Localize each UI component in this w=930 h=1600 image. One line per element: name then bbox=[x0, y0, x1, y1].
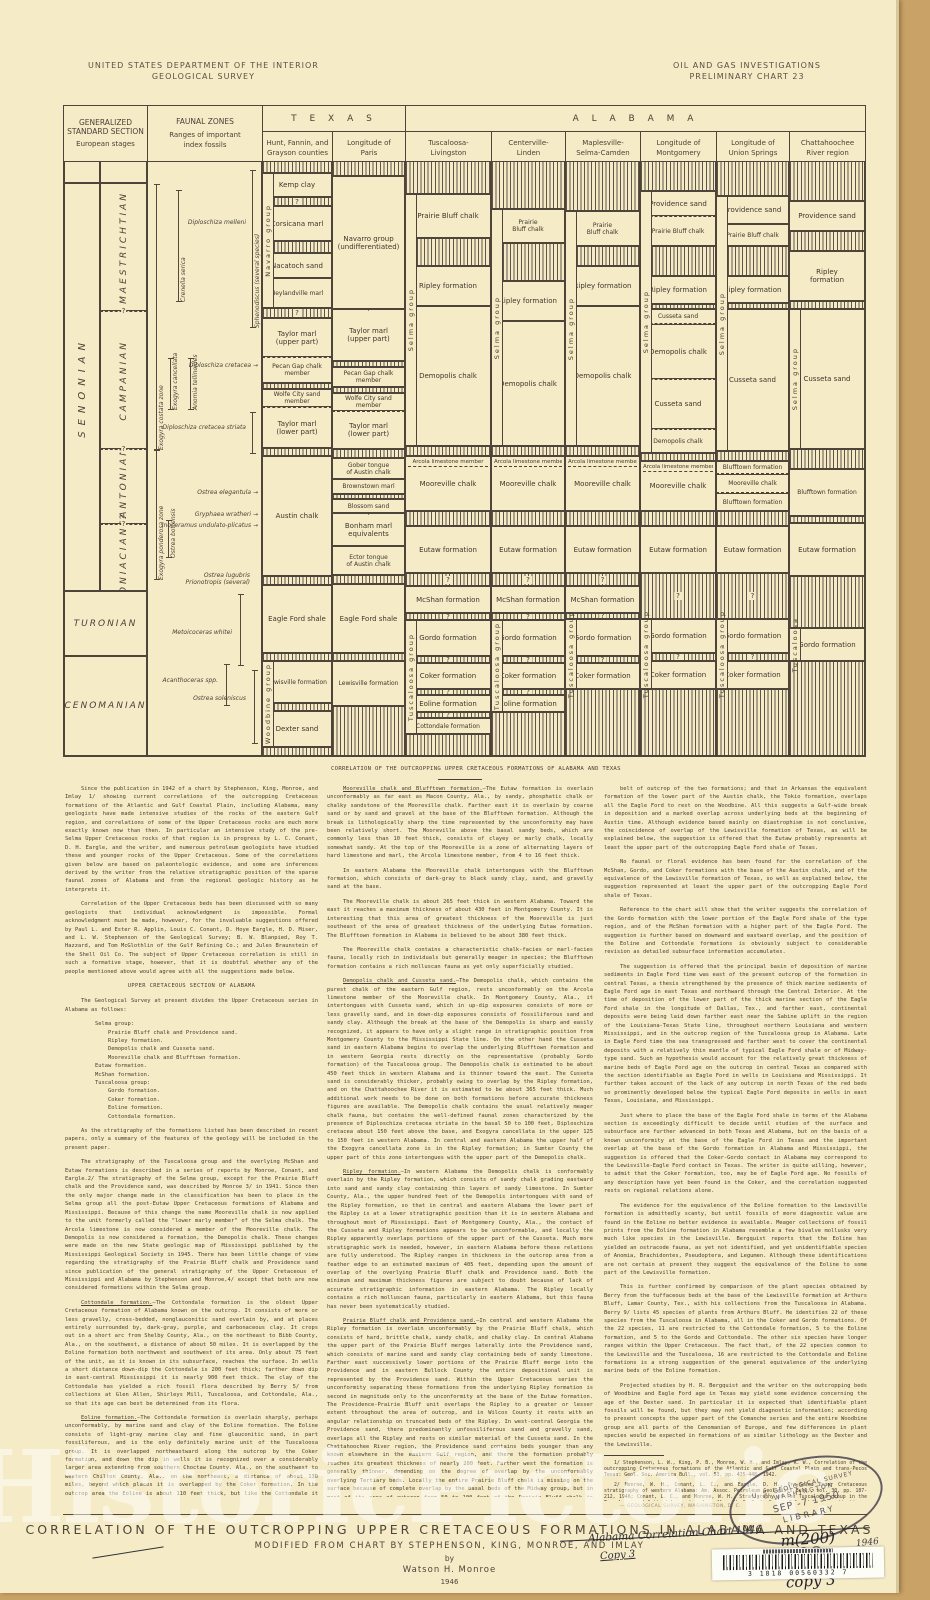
label-line: Providence sand bbox=[649, 200, 707, 208]
unconformity-hatch bbox=[565, 511, 640, 526]
formation-segment: McShan formation bbox=[565, 586, 640, 613]
label-line: European stages bbox=[76, 140, 135, 148]
unconformity-hatch bbox=[405, 734, 491, 756]
group-strip-label: Tuscaloosa group bbox=[567, 610, 575, 698]
formation-segment: Pecan Gap chalk member bbox=[332, 367, 405, 387]
group-strip: Selma group bbox=[640, 191, 652, 453]
label-line: Eagle Ford shale bbox=[340, 615, 398, 623]
unconformity-hatch: ? bbox=[262, 308, 332, 318]
label-line: Hunt, Fannin, and bbox=[267, 139, 329, 147]
column-longitude-of-montgomery: Providence sandPrairie Bluff chalkRipley… bbox=[640, 161, 716, 756]
formation-segment: Blufftown formation bbox=[789, 469, 865, 516]
label-line: Gordo formation bbox=[724, 632, 781, 640]
label-line: STANDARD SECTION bbox=[67, 128, 144, 137]
label-line: Eoline formation bbox=[419, 700, 477, 708]
group-strip-label: Tuscaloosa group bbox=[493, 622, 501, 710]
label-line: Blufftown formation bbox=[723, 464, 783, 471]
paragraph: This is further confirmed by comparison … bbox=[604, 1283, 867, 1375]
question-mark: ? bbox=[674, 653, 682, 661]
label-line: Demopolis chalk bbox=[499, 380, 557, 388]
label-line: formation bbox=[810, 276, 844, 284]
formation-segment: Austin chalk bbox=[262, 456, 332, 576]
list-line: Eoline formation. bbox=[95, 1104, 318, 1112]
unconformity-hatch bbox=[716, 511, 789, 526]
unconformity-hatch: ? bbox=[405, 656, 491, 663]
question-mark: ? bbox=[366, 513, 372, 518]
fossil-label: Diploschiza cretacea → bbox=[189, 363, 258, 370]
paragraph: The evidence for the equivalence of the … bbox=[604, 1202, 867, 1278]
formation-segment: Cottondale formation bbox=[405, 718, 491, 734]
label-line: Kemp clay bbox=[279, 181, 315, 189]
paragraph: No faunal or floral evidence has been fo… bbox=[604, 858, 867, 900]
list-line: Coker formation. bbox=[95, 1096, 318, 1104]
arcola-member-label: Arcola limestone member bbox=[643, 463, 713, 472]
group-strip-label: Tuscaloosa group bbox=[407, 633, 415, 721]
paragraph: Ripley formation.—In western Alabama the… bbox=[327, 1168, 593, 1311]
label-line: Longitude of bbox=[657, 139, 701, 147]
label-line: Longitude of bbox=[731, 139, 775, 147]
unconformity-hatch bbox=[262, 653, 332, 661]
label-line: Navarro group bbox=[343, 235, 393, 243]
group-strip: Tuscaloosa bbox=[789, 628, 801, 661]
unconformity-hatch bbox=[405, 238, 491, 266]
unconformity-hatch bbox=[332, 575, 405, 584]
header-region: Longitude ofMontgomery bbox=[640, 132, 716, 161]
list-line: Ripley formation. bbox=[95, 1037, 318, 1045]
question-mark: ? bbox=[444, 576, 452, 584]
label-line: Corsicana marl bbox=[271, 220, 324, 228]
paragraph-heading: Prairie Bluff chalk and Providence sand. bbox=[343, 1318, 476, 1324]
label-line: Montgomery bbox=[656, 149, 700, 157]
unconformity-hatch bbox=[332, 653, 405, 661]
agency-header: UNITED STATES DEPARTMENT OF THE INTERIOR… bbox=[88, 60, 319, 82]
paper-sheet: UNITED STATES DEPARTMENT OF THE INTERIOR… bbox=[0, 0, 899, 1593]
formation-segment: Demopolis chalk bbox=[405, 306, 491, 446]
header-region: Maplesville-Selma-Camden bbox=[565, 132, 640, 161]
formation-segment: Eutaw formation bbox=[789, 523, 865, 576]
scanned-chart-page: { "page": { "agency_line1": "UNITED STAT… bbox=[0, 0, 930, 1600]
label-line: Maplesville- bbox=[582, 139, 623, 147]
fossil-label: Ostrea soleniscus bbox=[193, 696, 246, 703]
header-region: Centerville-Linden bbox=[491, 132, 565, 161]
label-line: Union Springs bbox=[729, 149, 778, 157]
unconformity-hatch bbox=[565, 161, 640, 211]
barcode-label: 3 1818 00560332 7 bbox=[712, 1547, 885, 1581]
stage-box: SENONIAN bbox=[64, 183, 100, 591]
label-line: Paris bbox=[361, 149, 378, 157]
label-line: Coker formation bbox=[574, 672, 630, 680]
label-line: Prairie Bluff chalk bbox=[417, 212, 478, 220]
question-mark: ? bbox=[293, 309, 301, 317]
label-line: Prairie bbox=[593, 222, 612, 229]
paragraph-heading: Demopolis chalk and Cusseta sand. bbox=[343, 978, 456, 984]
fossil-label: Acanthoceras spp. bbox=[162, 678, 218, 685]
label-line: Ripley formation bbox=[574, 282, 632, 290]
label-line: Bluff chalk bbox=[512, 226, 544, 233]
question-mark: ? bbox=[121, 520, 127, 529]
group-strip-label: Navarro group bbox=[264, 204, 272, 277]
label-line: Coker formation bbox=[724, 671, 780, 679]
unconformity-hatch: ? bbox=[640, 573, 716, 619]
label-line: Cusseta sand bbox=[729, 376, 776, 384]
group-strip-label: Tuscaloosa group bbox=[642, 610, 650, 698]
formation-segment: McShan formation bbox=[405, 586, 491, 613]
fossil-range-line bbox=[156, 450, 157, 580]
group-strip-label: Selma group bbox=[493, 296, 501, 359]
header-group: A L A B A M A bbox=[405, 106, 865, 132]
label-line: Lewisville formation bbox=[339, 680, 399, 687]
paragraph-heading: Ripley formation. bbox=[343, 1169, 401, 1175]
paragraph-heading: Eoline formation. bbox=[81, 1415, 137, 1421]
formation-segment: Taylor marl(upper part) bbox=[262, 318, 332, 357]
group-strip: Navarro group bbox=[262, 173, 274, 308]
fossil-range-line bbox=[240, 594, 241, 666]
group-strip: Selma group bbox=[565, 211, 577, 446]
column-maplesville-selma-camden: PrairieBluff chalkRipley formationDemopo… bbox=[565, 161, 640, 756]
fossil-range-line bbox=[156, 184, 157, 450]
label-line: Prairie Bluff chalk bbox=[726, 232, 779, 239]
question-mark: ? bbox=[674, 592, 682, 600]
label-line: McShan formation bbox=[416, 596, 480, 604]
unconformity-hatch bbox=[789, 161, 865, 201]
group-strip-label: Selma group bbox=[791, 347, 799, 410]
label-line: Pecan Gap chalk member bbox=[263, 363, 331, 377]
series-line2: PRELIMINARY CHART 23 bbox=[673, 71, 821, 82]
agency-line1: UNITED STATES DEPARTMENT OF THE INTERIOR bbox=[88, 60, 319, 71]
fossil-range-label: Exogyra cancellata bbox=[172, 358, 179, 410]
label-line: index fossils bbox=[169, 141, 241, 149]
formation-segment: Brownstown marl bbox=[332, 479, 405, 494]
text-section-heading: CORRELATION OF THE OUTCROPPING UPPER CRE… bbox=[331, 766, 621, 772]
group-strip-label: Selma group bbox=[567, 297, 575, 360]
label-line: Mooreville chalk bbox=[574, 480, 631, 488]
stage-box: CENOMANIAN bbox=[64, 656, 147, 756]
label-line: (upper part) bbox=[276, 338, 319, 346]
question-mark: ? bbox=[524, 656, 532, 663]
unconformity-hatch bbox=[332, 161, 405, 176]
unconformity-hatch bbox=[789, 231, 865, 251]
label-line: Eutaw formation bbox=[419, 546, 477, 554]
formation-segment: Arcola limestone memberMooreville chalk bbox=[565, 456, 640, 511]
label-line: Ector tongue bbox=[349, 554, 388, 561]
fossil-range-line bbox=[252, 170, 253, 328]
arcola-member-label: Arcola limestone member bbox=[494, 458, 562, 467]
formation-segment: Ripley formation bbox=[405, 266, 491, 306]
series-line1: OIL AND GAS INVESTIGATIONS bbox=[673, 60, 821, 71]
unconformity-hatch bbox=[565, 446, 640, 456]
stage-box: TURONIAN bbox=[64, 591, 147, 656]
formation-segment: Eutaw formation bbox=[405, 526, 491, 573]
label-line: Eutaw formation bbox=[574, 546, 632, 554]
paragraph: Correlation of the Upper Cretaceous beds… bbox=[65, 900, 318, 976]
question-mark: ? bbox=[599, 656, 607, 663]
label-line: Bluff chalk bbox=[587, 229, 619, 236]
label-line: Blufftown formation bbox=[723, 499, 783, 506]
label-line: Blossom sand bbox=[348, 503, 390, 510]
label-line: Eutaw formation bbox=[798, 546, 856, 554]
fossil-range-label: Sphenodiscus (several species) bbox=[254, 170, 261, 328]
fossil-label: Ostrea lugubrisPrionotropis (several) bbox=[186, 573, 250, 586]
label-line: Ripley formation bbox=[419, 282, 477, 290]
unconformity-hatch bbox=[716, 689, 789, 756]
fossil-range-label: Exogyra costata zone bbox=[158, 184, 165, 450]
group-strip: Selma group bbox=[789, 309, 801, 449]
unconformity-hatch bbox=[789, 576, 865, 628]
stage-label: TURONIAN bbox=[74, 619, 138, 629]
series-header: OIL AND GAS INVESTIGATIONS PRELIMINARY C… bbox=[673, 60, 821, 82]
question-mark: ? bbox=[121, 307, 127, 316]
fossil-label: Inoceramus undulato-plicatus → bbox=[162, 523, 258, 530]
label-line: (undifferentiated) bbox=[338, 243, 400, 251]
stage-box: ?CAMPANIAN bbox=[100, 311, 147, 449]
label-line: McShan formation bbox=[571, 596, 635, 604]
label-line: Cusseta sand bbox=[658, 313, 698, 320]
label-line: Cottondale formation bbox=[416, 723, 480, 730]
formation-segment: Eagle Ford shale bbox=[262, 585, 332, 653]
label-line: (lower part) bbox=[276, 428, 317, 436]
stage-label: CAMPANIAN bbox=[119, 340, 129, 421]
question-mark: ? bbox=[121, 445, 127, 454]
list-line: Mooreville chalk and Blufftown formation… bbox=[95, 1054, 318, 1062]
label-line: Wolfe City sand member bbox=[263, 391, 331, 405]
formation-segment: ?Bonham marlequivalents bbox=[332, 513, 405, 546]
formation-segment: Eutaw formation bbox=[565, 526, 640, 573]
column-longitude-of-paris: Navarro group(undifferentiated)?Taylor m… bbox=[332, 161, 405, 756]
group-strip: Tuscaloosa group bbox=[716, 619, 728, 689]
formation-segment: Eutaw formation bbox=[716, 526, 789, 573]
unconformity-hatch: ? bbox=[491, 613, 565, 620]
paragraph: Eoline formation.—The Cottondale formati… bbox=[65, 1414, 318, 1497]
header-region: ChattahoocheeRiver region bbox=[789, 132, 865, 161]
group-strip: Selma group bbox=[405, 194, 417, 446]
label-line: Gordo formation bbox=[419, 634, 476, 642]
unconformity-hatch: ? bbox=[565, 573, 640, 586]
stage-label: SENONIAN bbox=[77, 337, 88, 438]
label-line: Chattahoochee bbox=[801, 139, 854, 147]
label-line: Ranges of important bbox=[169, 131, 241, 139]
formation-segment: Arcola limestone memberMooreville chalk bbox=[405, 456, 491, 511]
label-line: McShan formation bbox=[496, 596, 560, 604]
group-strip: Tuscaloosa group bbox=[491, 620, 503, 712]
formation-segment: Mooreville chalk bbox=[716, 474, 789, 493]
label-line: Gordo formation bbox=[574, 634, 631, 642]
header-region: Longitude ofUnion Springs bbox=[716, 132, 789, 161]
formation-segment: Lewisville formation bbox=[332, 661, 405, 706]
label-line: Grayson counties bbox=[267, 149, 328, 157]
formation-segment: Blufftown formation bbox=[716, 461, 789, 474]
label-line: Ripley formation bbox=[499, 297, 557, 305]
text-column-2: Mooreville chalk and Blufftown formation… bbox=[327, 785, 593, 1497]
unconformity-hatch bbox=[491, 712, 565, 756]
fossil-label: Diploschiza cretacea striata bbox=[163, 425, 246, 432]
group-strip-label: Selma group bbox=[718, 292, 726, 355]
unconformity-hatch bbox=[491, 446, 565, 456]
formation-segment: Arcola limestone memberMooreville chalk bbox=[491, 456, 565, 511]
question-mark: ? bbox=[444, 656, 452, 663]
question-mark: ? bbox=[599, 576, 607, 584]
formation-segment: Taylor marl(lower part) bbox=[332, 411, 405, 449]
fossil-range-line bbox=[178, 190, 179, 302]
label-line: Cusseta sand bbox=[803, 375, 850, 383]
label-line: Taylor marl bbox=[278, 420, 317, 428]
unconformity-hatch bbox=[405, 161, 491, 194]
label-line: Demopolis chalk bbox=[419, 372, 477, 380]
stage-label: CENOMANIAN bbox=[65, 701, 147, 711]
label-line: Selma-Camden bbox=[576, 149, 630, 157]
label-line: Taylor marl bbox=[349, 422, 388, 430]
label-line: Eutaw formation bbox=[499, 546, 557, 554]
unconformity-hatch bbox=[405, 446, 491, 456]
formation-segment: Coker formation bbox=[405, 663, 491, 689]
list-line: Gordo formation. bbox=[95, 1087, 318, 1095]
arcola-member-label: Arcola limestone member bbox=[568, 458, 637, 467]
unconformity-hatch: ? bbox=[491, 573, 565, 586]
paragraph: The Mooreville chalk contains a characte… bbox=[327, 946, 593, 971]
unconformity-hatch bbox=[332, 706, 405, 756]
group-strip: Selma group bbox=[716, 196, 728, 451]
fossil-range-line bbox=[254, 670, 255, 744]
group-strip: Tuscaloosa group bbox=[640, 619, 652, 689]
unconformity-hatch: ? bbox=[405, 573, 491, 586]
unconformity-hatch bbox=[262, 747, 332, 756]
printer-imprint: — GEOLOGICAL SURVEY, WASHINGTON, D. C. bbox=[620, 1504, 741, 1509]
label-line: Providence sand bbox=[798, 212, 856, 220]
label-line: Longitude of bbox=[347, 139, 391, 147]
label-line: Livingston bbox=[431, 149, 467, 157]
unconformity-hatch bbox=[640, 511, 716, 526]
list-line: Eutaw formation. bbox=[95, 1062, 318, 1070]
label-line: Lewisville formation bbox=[267, 679, 327, 686]
formation-segment: Prairie Bluff chalk bbox=[405, 194, 491, 238]
formation-segment: Blufftown formation bbox=[716, 493, 789, 511]
label-line: Providence sand bbox=[724, 206, 782, 214]
unconformity-hatch bbox=[789, 301, 865, 309]
group-strip-label: Woodbine group bbox=[264, 663, 272, 744]
stage-box: ?CONIACIAN ? bbox=[100, 524, 147, 591]
group-label: T E X A S bbox=[291, 114, 377, 124]
heading-rule bbox=[438, 779, 482, 780]
label-line: Austin chalk bbox=[276, 512, 319, 520]
stage-box bbox=[100, 161, 147, 183]
header-cell: FAUNAL ZONESRanges of importantindex fos… bbox=[147, 106, 262, 161]
label-line: Ripley formation bbox=[724, 286, 782, 294]
fossil-range-label: Crenella serica bbox=[180, 190, 187, 302]
label-line: Brownstown marl bbox=[342, 483, 394, 490]
formation-segment: McShan formation bbox=[491, 586, 565, 613]
label-line: Coker formation bbox=[500, 672, 556, 680]
label-line: of Austin chalk bbox=[346, 561, 390, 568]
header-region: Tuscaloosa-Livingston bbox=[405, 132, 491, 161]
list-line: Cottondale formation. bbox=[95, 1113, 318, 1121]
label-line: Nacatoch sand bbox=[271, 262, 323, 270]
group-strip: Selma group bbox=[491, 209, 503, 446]
text-column-1: Since the publication in 1942 of a chart… bbox=[65, 785, 318, 1497]
label-line: Ripley bbox=[816, 268, 838, 276]
formation-segment: ?Taylor marl(upper part) bbox=[332, 309, 405, 361]
column-tuscaloosa-livingston: Prairie Bluff chalkRipley formationDemop… bbox=[405, 161, 491, 756]
group-strip-label: Tuscaloosa bbox=[791, 617, 799, 672]
paragraph: Reference to the chart will show that th… bbox=[604, 906, 867, 956]
formation-segment: Wolfe City sand member bbox=[332, 393, 405, 411]
formation-segment: Gober tongueof Austin chalk bbox=[332, 458, 405, 479]
label-line: Demopolis chalk bbox=[653, 438, 703, 445]
unconformity-hatch: ? bbox=[405, 613, 491, 620]
label-line: Prairie bbox=[518, 219, 537, 226]
paragraph: Prairie Bluff chalk and Providence sand.… bbox=[327, 1317, 593, 1497]
group-strip-label: Selma group bbox=[407, 288, 415, 351]
list-line: Prairie Bluff chalk and Providence sand. bbox=[95, 1029, 318, 1037]
unconformity-hatch bbox=[491, 511, 565, 526]
paragraph: As the stratigraphy of the formations li… bbox=[65, 1127, 318, 1152]
question-mark: ? bbox=[749, 592, 757, 600]
unconformity-hatch bbox=[789, 449, 865, 469]
label-line: Tuscaloosa- bbox=[428, 139, 468, 147]
unconformity-hatch bbox=[640, 161, 716, 191]
paragraph: Cottondale formation.—The Cottondale for… bbox=[65, 1299, 318, 1408]
formation-segment: Eutaw formation bbox=[640, 526, 716, 573]
stage-box bbox=[64, 161, 100, 183]
list-line: Tuscaloosa group: bbox=[95, 1079, 318, 1087]
question-mark: ? bbox=[749, 653, 757, 661]
formation-segment: Ripleyformation bbox=[789, 251, 865, 301]
column-centerville-linden: PrairieBluff chalkRipley formationDemopo… bbox=[491, 161, 565, 756]
paragraph: Demopolis chalk and Cusseta sand.—The De… bbox=[327, 977, 593, 1162]
label-line: (upper part) bbox=[347, 335, 390, 343]
label-line: Demopolis chalk bbox=[574, 372, 632, 380]
paragraph: The Mooreville chalk is about 265 feet t… bbox=[327, 898, 593, 940]
faunal-column: Exogyra costata zoneCrenella sericaSphen… bbox=[147, 161, 262, 756]
question-mark: ? bbox=[366, 309, 372, 314]
question-mark: ? bbox=[293, 198, 301, 206]
formation-segment: Providence sand bbox=[789, 201, 865, 231]
formation-list: Selma group: Prairie Bluff chalk and Pro… bbox=[95, 1020, 318, 1121]
unconformity-hatch bbox=[640, 689, 716, 756]
unconformity-hatch bbox=[491, 161, 565, 209]
header-cell: GENERALIZEDSTANDARD SECTIONEuropean stag… bbox=[64, 106, 147, 161]
group-strip: Tuscaloosa group bbox=[565, 619, 577, 689]
group-strip-label: Tuscaloosa group bbox=[718, 610, 726, 698]
label-line: Gordo formation bbox=[798, 641, 855, 649]
paragraph: belt of outcrop of the two formations; a… bbox=[604, 785, 867, 852]
label-line: Mooreville chalk bbox=[500, 480, 557, 488]
label-line: Dexter sand bbox=[276, 725, 319, 733]
header-subtitle: Ranges of importantindex fossils bbox=[169, 129, 241, 149]
column-chattahoochee-river-region: Providence sandRipleyformationCusseta sa… bbox=[789, 161, 865, 756]
paragraph: In eastern Alabama the Mooreville chalk … bbox=[327, 867, 593, 892]
stage-label: MAESTRICHTIAN bbox=[119, 191, 129, 304]
agency-line2: GEOLOGICAL SURVEY bbox=[88, 71, 319, 82]
fossil-range-line bbox=[170, 358, 171, 410]
label-line: Demopolis chalk bbox=[649, 348, 707, 356]
formation-segment: Navarro group(undifferentiated) bbox=[332, 176, 405, 309]
formation-segment: Gordo formation bbox=[405, 620, 491, 656]
label-line: Eoline formation bbox=[499, 700, 557, 708]
formation-segment: Blossom sand bbox=[332, 499, 405, 513]
arcola-member-label: Arcola limestone member bbox=[408, 458, 488, 467]
unconformity-hatch bbox=[262, 576, 332, 585]
stage-column: SENONIANMAESTRICHTIAN?CAMPANIAN?SANTONIA… bbox=[64, 161, 147, 756]
unconformity-hatch bbox=[262, 448, 332, 456]
unconformity-hatch bbox=[716, 451, 789, 461]
label-line: River region bbox=[806, 149, 849, 157]
label-line: Coker formation bbox=[650, 671, 706, 679]
formation-segment: Eoline formation bbox=[405, 695, 491, 712]
paragraph: Just where to place the base of the Eagl… bbox=[604, 1112, 867, 1196]
label-line: of Austin chalk bbox=[346, 469, 390, 476]
unconformity-hatch bbox=[332, 449, 405, 458]
label-line: Bonham marl bbox=[345, 522, 392, 530]
text-column-3: belt of outcrop of the two formations; a… bbox=[604, 785, 867, 1501]
